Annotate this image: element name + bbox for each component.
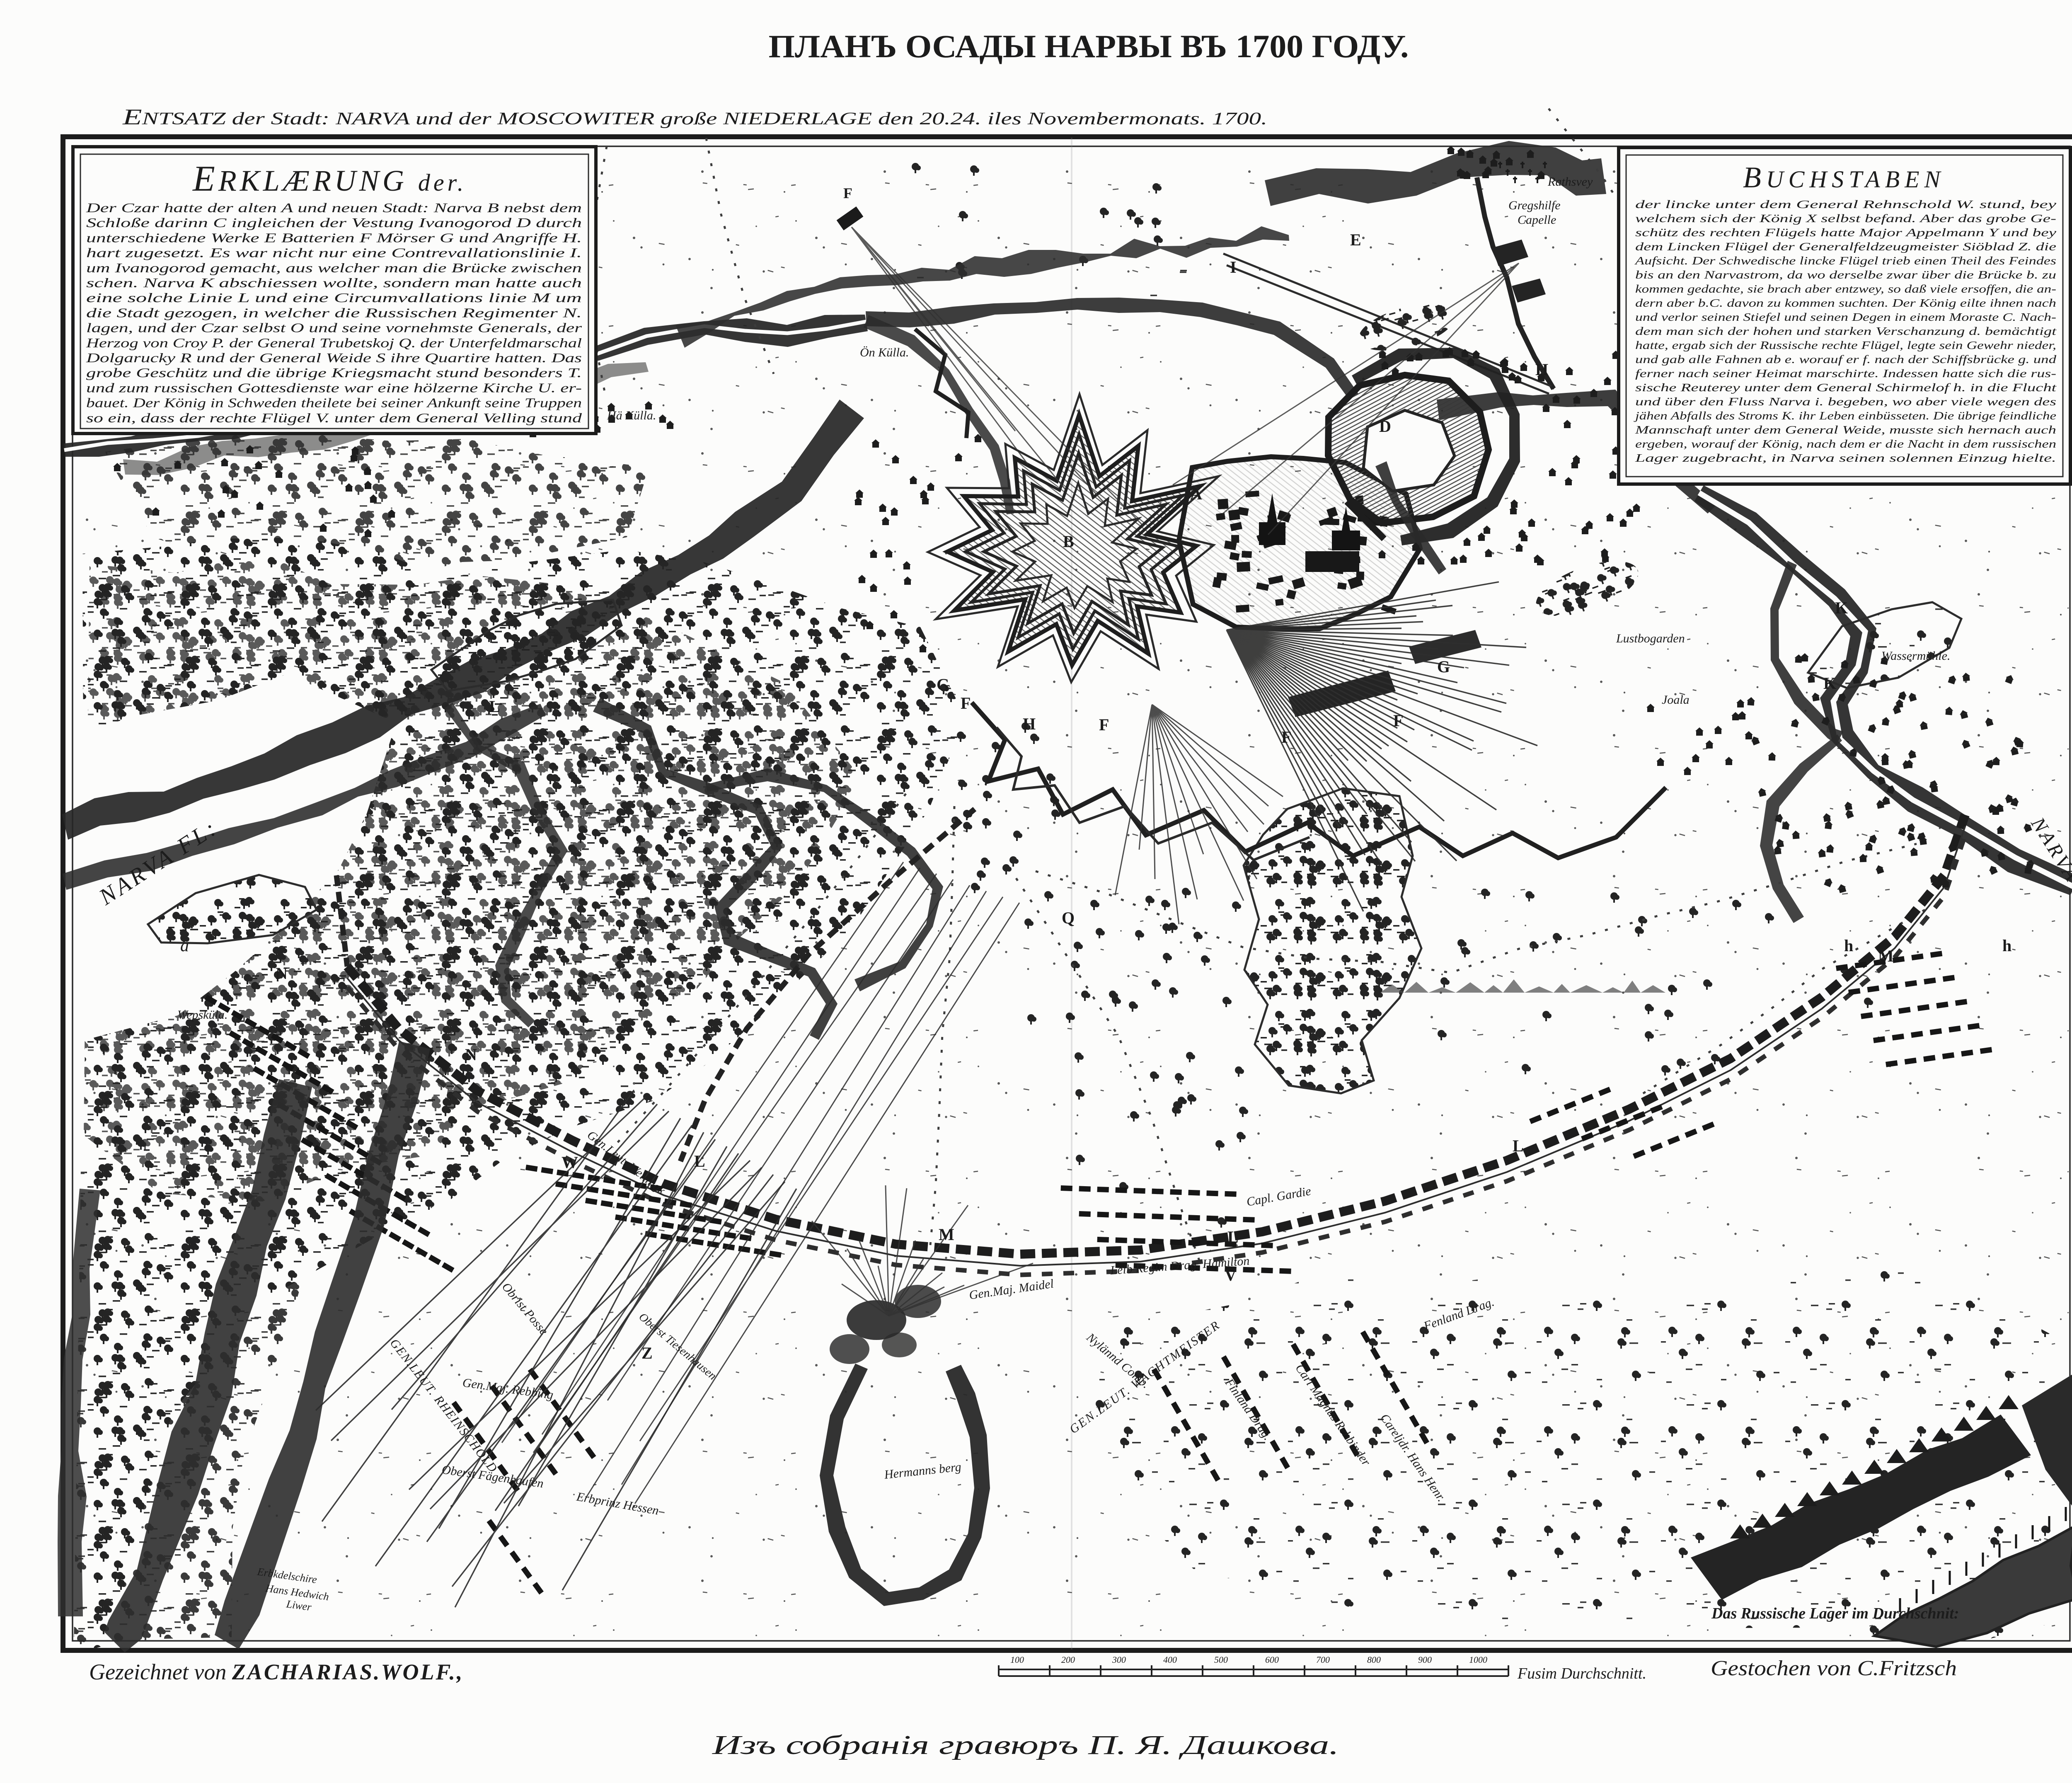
svg-text:M: M <box>1878 947 1894 965</box>
svg-text:ergeben, worauf der König, nac: ergeben, worauf der König, nach dem er d… <box>1635 437 2056 450</box>
svg-text:Q: Q <box>1062 908 1075 927</box>
svg-text:Gestochen von C.Fritzsch: Gestochen von C.Fritzsch <box>1711 1657 1957 1680</box>
svg-text:Hä Külla.: Hä Külla. <box>607 409 656 422</box>
svg-text:900: 900 <box>1418 1655 1432 1665</box>
svg-text:die Stadt gezogen, in welcher: die Stadt gezogen, in welcher die Russis… <box>86 305 582 320</box>
svg-text:N: N <box>276 964 288 983</box>
svg-text:F: F <box>961 694 971 712</box>
svg-text:und verlor seinen Stiefel und: und verlor seinen Stiefel und seinen Deg… <box>1635 310 2056 323</box>
svg-text:bauet. Der König in Schweden t: bauet. Der König in Schweden theilete be… <box>86 395 582 410</box>
svg-text:Das Russische Lager im Durchsc: Das Russische Lager im Durchschnit: <box>1711 1605 1959 1622</box>
svg-text:K: K <box>1835 598 1848 617</box>
svg-text:800: 800 <box>1367 1655 1381 1665</box>
svg-text:D: D <box>1379 417 1391 436</box>
svg-text:L: L <box>694 1152 705 1170</box>
svg-text:Der Czar hatte der alten A und: Der Czar hatte der alten A und neuen Sta… <box>86 200 582 215</box>
svg-text:Capelle: Capelle <box>1518 213 1556 227</box>
svg-text:I: I <box>1230 258 1237 276</box>
svg-text:a: a <box>180 936 189 955</box>
svg-text:B: B <box>1063 532 1074 551</box>
svg-text:100: 100 <box>1010 1655 1024 1665</box>
svg-text:G: G <box>937 675 949 694</box>
svg-text:500: 500 <box>1214 1655 1228 1665</box>
svg-text:Wepsküla.: Wepsküla. <box>177 1008 228 1022</box>
svg-text:schen. Narva K abschiessen wol: schen. Narva K abschiessen wollte, sonde… <box>86 275 582 290</box>
svg-text:jähen Abfalls des Stroms K. ih: jähen Abfalls des Stroms K. ihr Leben ei… <box>1634 409 2056 422</box>
svg-text:h: h <box>2002 936 2011 955</box>
svg-text:hart zugesetzt. Es war nicht n: hart zugesetzt. Es war nicht nur eine Co… <box>86 245 582 260</box>
svg-text:welchem sich der König X selbs: welchem sich der König X selbst befand. … <box>1635 212 2056 225</box>
svg-text:Gregshilfe: Gregshilfe <box>1508 199 1561 212</box>
svg-text:Joala: Joala <box>1662 693 1690 707</box>
svg-text:h: h <box>1844 936 1853 955</box>
svg-text:A: A <box>1190 485 1202 503</box>
svg-text:Fusim Durchschnitt.: Fusim Durchschnitt. <box>1517 1665 1646 1682</box>
svg-text:Изъ собранія гравюръ П. Я. Даш: Изъ собранія гравюръ П. Я. Дашкова. <box>712 1730 1339 1760</box>
svg-text:W: W <box>562 1153 578 1172</box>
svg-text:dern aber b.C. davon zu kommen: dern aber b.C. davon zu kommen suchten. … <box>1635 296 2056 309</box>
svg-text:Lustbogarden: Lustbogarden <box>1616 632 1685 645</box>
svg-text:Aufsicht. Der Schwedische linc: Aufsicht. Der Schwedische lincke Flügel … <box>1634 254 2056 267</box>
svg-text:Schloße darinn C ingleichen de: Schloße darinn C ingleichen der Vestung … <box>86 215 582 230</box>
svg-text:grobe Geschütz und die übrige: grobe Geschütz und die übrige Kriegsmach… <box>86 365 582 380</box>
svg-text:H: H <box>1023 715 1036 733</box>
svg-text:Ön Külla.: Ön Külla. <box>860 346 909 359</box>
svg-text:H: H <box>1535 360 1548 379</box>
svg-text:N: N <box>465 1045 477 1064</box>
svg-text:F: F <box>843 185 852 201</box>
svg-text:Gezeichnet von ZACHARIAS.WOLF.: Gezeichnet von ZACHARIAS.WOLF., <box>89 1659 464 1684</box>
svg-text:Z: Z <box>641 1344 653 1362</box>
svg-text:sische Reuterey unter dem Gene: sische Reuterey unter dem General Schirm… <box>1635 381 2057 394</box>
svg-text:300: 300 <box>1112 1655 1126 1665</box>
svg-text:so ein, dass der rechte Flügel: so ein, dass der rechte Flügel V. unter … <box>86 410 582 425</box>
svg-text:ferner nach seiner Heimat mars: ferner nach seiner Heimat marschirte. In… <box>1635 367 2056 380</box>
svg-text:Rathsvey: Rathsvey <box>1547 175 1593 189</box>
svg-text:Wassermühle.: Wassermühle. <box>1881 649 1950 663</box>
svg-text:Dolgarucky R und der General W: Dolgarucky R und der General Weide S ihr… <box>86 350 582 365</box>
svg-text:200: 200 <box>1061 1655 1075 1665</box>
svg-text:600: 600 <box>1265 1655 1279 1665</box>
svg-text:1000: 1000 <box>1469 1655 1487 1665</box>
svg-text:BUCHSTABEN: BUCHSTABEN <box>1743 161 1945 194</box>
svg-text:hatte, ergab sich der Russisch: hatte, ergab sich der Russische rechte F… <box>1635 339 2056 351</box>
svg-text:L: L <box>1513 1136 1524 1155</box>
svg-text:eine solche Linie L und eine C: eine solche Linie L und eine Circumvalla… <box>86 290 582 305</box>
svg-text:lagen, und der Czar selbst O u: lagen, und der Czar selbst O und seine v… <box>86 320 582 335</box>
svg-text:schütz des rechten Flügels hat: schütz des rechten Flügels hatte Major A… <box>1635 226 2057 239</box>
svg-text:L: L <box>489 697 500 716</box>
svg-text:kommen gedachte, sie brach abe: kommen gedachte, sie brach aber entzwey,… <box>1635 282 2056 295</box>
svg-text:unterschiedene Werke E Batteri: unterschiedene Werke E Batterien F Mörse… <box>86 230 582 245</box>
svg-text:bis an den Narvastrom, da wo d: bis an den Narvastrom, da wo derselbe zw… <box>1635 268 2056 281</box>
svg-text:G: G <box>1437 657 1450 676</box>
svg-text:und über den Fluss Narva i. be: und über den Fluss Narva i. begeben, wo … <box>1635 395 2056 408</box>
svg-text:dem Lincken Flügel der General: dem Lincken Flügel der Generalfeldzeugme… <box>1635 240 2056 253</box>
svg-text:Herzog von Croy P. der General: Herzog von Croy P. der General Trubetsko… <box>86 335 582 350</box>
svg-text:400: 400 <box>1163 1655 1177 1665</box>
svg-text:und zum russischen Gottesdiens: und zum russischen Gottesdienste war ein… <box>86 380 582 395</box>
svg-text:E: E <box>1350 230 1361 249</box>
svg-text:F: F <box>1099 715 1109 734</box>
svg-text:K: K <box>1823 674 1836 693</box>
svg-text:und gab alle Fahnen ab e. wora: und gab alle Fahnen ab e. worauf er f. n… <box>1635 353 2056 366</box>
svg-text:F: F <box>1281 728 1291 746</box>
svg-text:L: L <box>1227 1228 1239 1246</box>
svg-text:um Ivanogorod gemacht, aus wel: um Ivanogorod gemacht, aus welcher man d… <box>86 260 582 275</box>
svg-text:Lager zugebracht, in Narva sei: Lager zugebracht, in Narva seinen solenn… <box>1634 451 2056 464</box>
svg-text:F: F <box>1393 711 1403 730</box>
svg-text:ПЛАНЪ ОСАДЫ НАРВЫ ВЪ 1700 ГОДУ: ПЛАНЪ ОСАДЫ НАРВЫ ВЪ 1700 ГОДУ. <box>769 28 1409 64</box>
svg-text:Mannschaft unter dem General W: Mannschaft unter dem General Weide, muss… <box>1635 423 2056 436</box>
svg-text:der lincke unter dem General R: der lincke unter dem General Rehnschold … <box>1635 198 2057 211</box>
svg-text:dem man sich der hohen und sta: dem man sich der hohen und starken Versc… <box>1635 325 2057 337</box>
svg-text:700: 700 <box>1316 1655 1330 1665</box>
svg-text:M: M <box>939 1225 954 1244</box>
